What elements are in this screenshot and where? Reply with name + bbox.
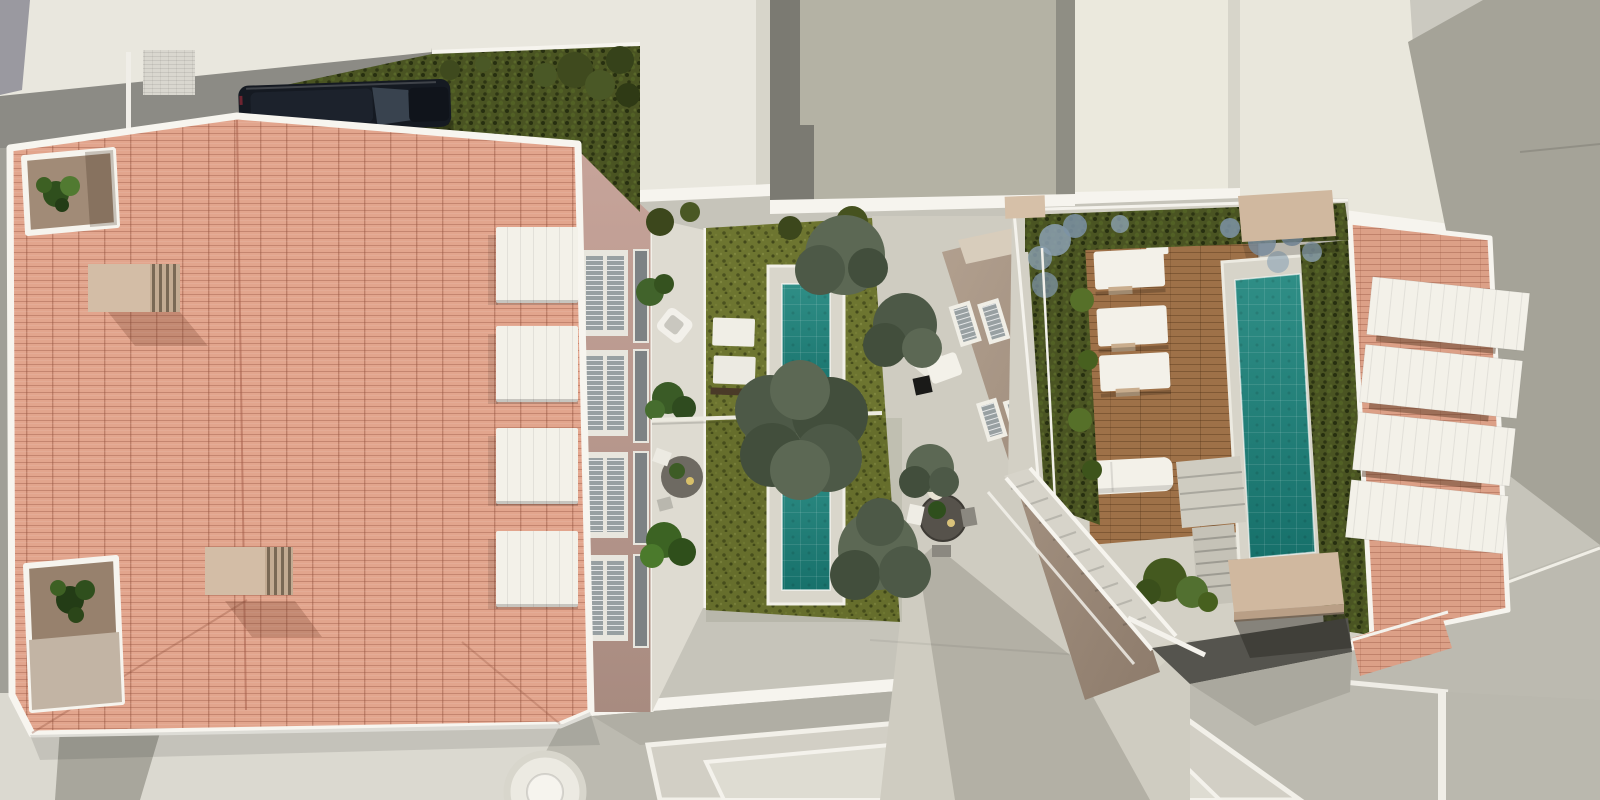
canopy-bottom bbox=[1228, 552, 1352, 658]
awning bbox=[488, 227, 578, 305]
cream-building-a bbox=[640, 0, 770, 198]
side-table-black bbox=[913, 375, 933, 395]
roof-light-well-top bbox=[24, 150, 117, 233]
textured-wall-patch bbox=[143, 50, 195, 95]
deck-lounger bbox=[1099, 352, 1171, 398]
aerial-render bbox=[0, 0, 1600, 800]
cream-building-c bbox=[1075, 0, 1240, 202]
awning bbox=[488, 326, 578, 404]
wall-pole bbox=[126, 52, 131, 132]
car-taillight bbox=[239, 96, 242, 105]
scene-canvas bbox=[0, 0, 1600, 800]
deck-loungers bbox=[1093, 240, 1176, 398]
round-skylight bbox=[507, 754, 583, 800]
awning bbox=[488, 531, 578, 609]
roof-light-well-bottom bbox=[26, 558, 122, 710]
gray-roof-deck-b bbox=[770, 0, 1075, 208]
right-building bbox=[1345, 222, 1530, 676]
roof-panels bbox=[1345, 277, 1530, 554]
canopy-small bbox=[1005, 195, 1046, 218]
awning bbox=[488, 428, 578, 506]
canopy-top bbox=[1238, 190, 1340, 258]
